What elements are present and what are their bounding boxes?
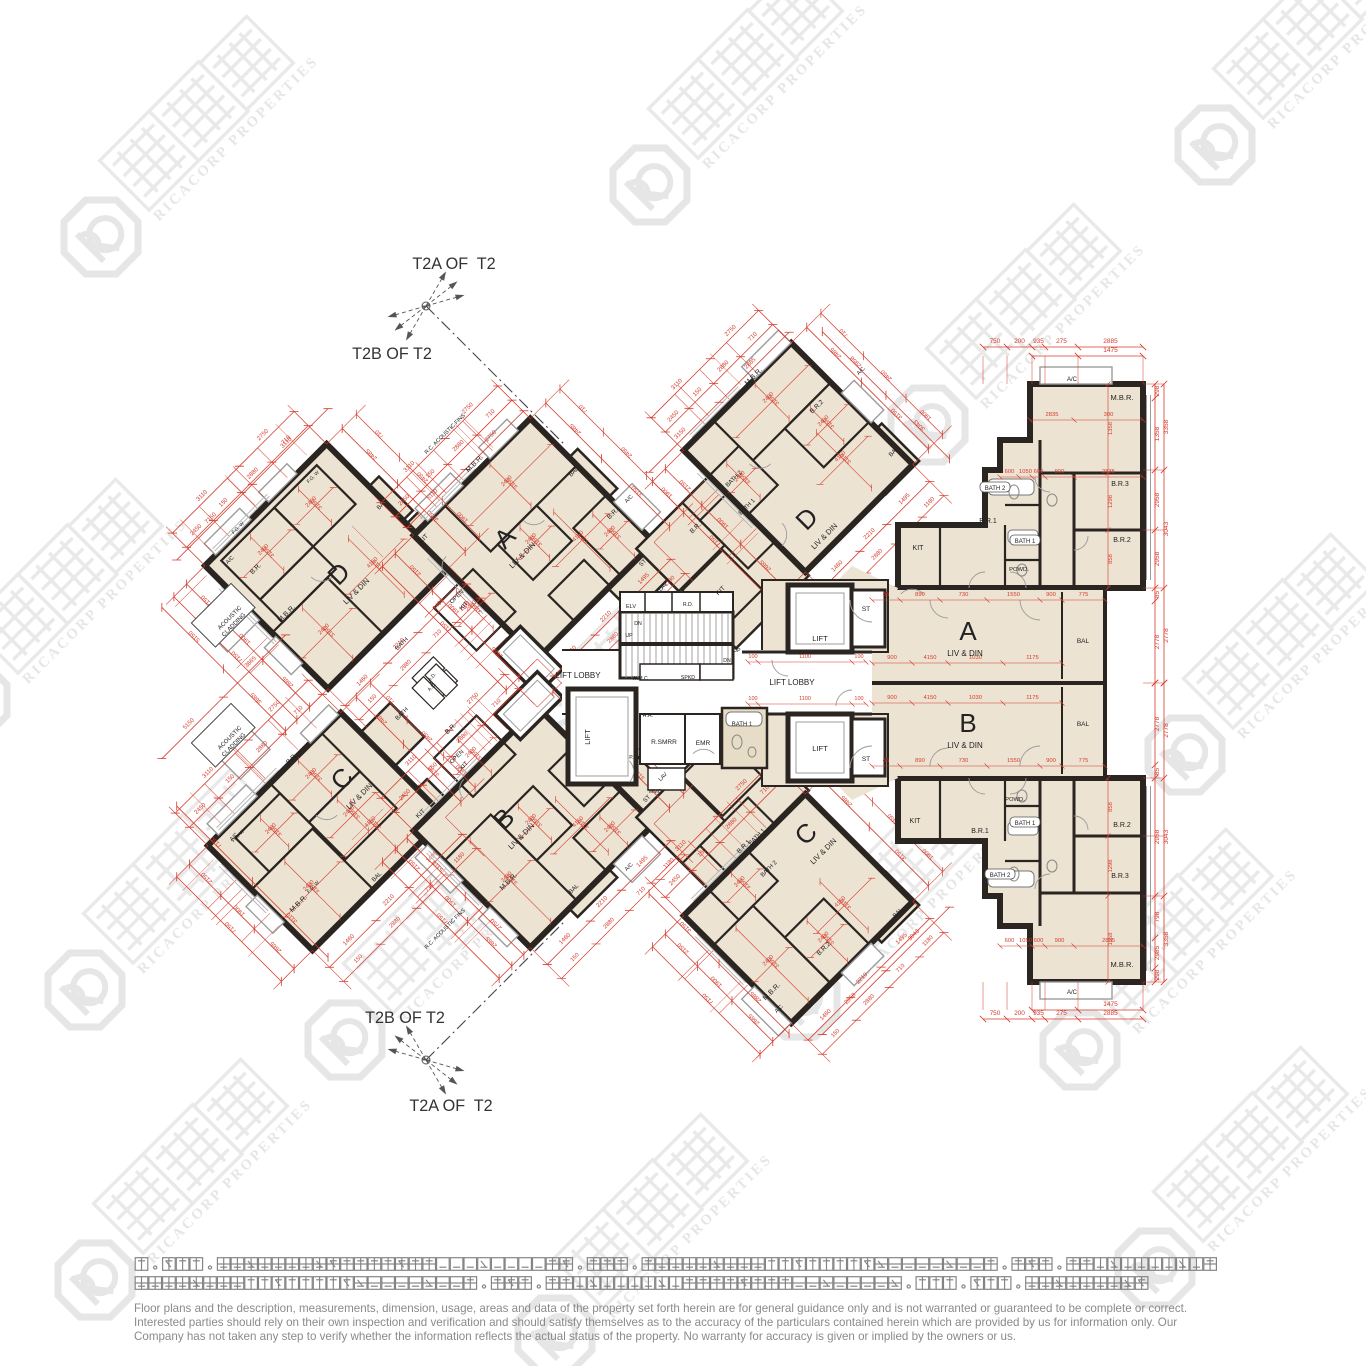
svg-text:T2B OF T2: T2B OF T2 bbox=[352, 345, 432, 363]
svg-text:100: 100 bbox=[748, 696, 757, 702]
svg-text:Floor plans and the descriptio: Floor plans and the description, measure… bbox=[134, 1302, 1187, 1315]
svg-text:935: 935 bbox=[1033, 338, 1044, 345]
svg-text:750: 750 bbox=[990, 338, 1001, 345]
svg-text:730: 730 bbox=[959, 758, 969, 764]
svg-text:1358: 1358 bbox=[1108, 422, 1114, 435]
svg-text:LIFT: LIFT bbox=[812, 634, 828, 643]
svg-text:3358: 3358 bbox=[1163, 931, 1170, 946]
svg-text:POWD.: POWD. bbox=[1005, 797, 1025, 803]
svg-text:2958: 2958 bbox=[1154, 551, 1161, 566]
svg-text:600: 600 bbox=[1005, 938, 1015, 944]
svg-text:100: 100 bbox=[854, 654, 863, 660]
svg-text:BATH 1: BATH 1 bbox=[732, 722, 753, 728]
svg-text:KIT: KIT bbox=[910, 818, 922, 825]
svg-text:3358: 3358 bbox=[1163, 419, 1170, 434]
svg-text:890: 890 bbox=[915, 592, 925, 598]
svg-text:WMC: WMC bbox=[649, 789, 662, 795]
svg-text:600: 600 bbox=[1005, 469, 1015, 475]
svg-text:M.B.R.: M.B.R. bbox=[1111, 960, 1134, 969]
svg-text:900: 900 bbox=[887, 695, 897, 701]
svg-text:DN: DN bbox=[634, 621, 642, 627]
svg-text:730: 730 bbox=[959, 592, 969, 598]
svg-text:BAL: BAL bbox=[1077, 721, 1090, 728]
svg-text:1298: 1298 bbox=[1108, 495, 1114, 508]
svg-text:B.R.2: B.R.2 bbox=[1113, 537, 1131, 544]
svg-text:B.R.2: B.R.2 bbox=[1113, 822, 1131, 829]
svg-text:BATH 1: BATH 1 bbox=[1015, 539, 1036, 545]
svg-text:UP: UP bbox=[733, 648, 741, 654]
svg-text:1175: 1175 bbox=[1026, 655, 1038, 661]
svg-text:2778: 2778 bbox=[1163, 628, 1170, 643]
svg-text:2985: 2985 bbox=[1154, 945, 1161, 960]
svg-text:85: 85 bbox=[883, 592, 889, 598]
svg-text:2778: 2778 bbox=[1154, 716, 1161, 731]
svg-text:M.B.R.: M.B.R. bbox=[1111, 393, 1134, 402]
svg-text:900: 900 bbox=[1046, 592, 1056, 598]
svg-text:2835: 2835 bbox=[1046, 412, 1059, 418]
svg-text:1358: 1358 bbox=[1154, 426, 1161, 441]
svg-text:900: 900 bbox=[887, 655, 897, 661]
svg-text:85: 85 bbox=[1154, 591, 1161, 599]
svg-text:298: 298 bbox=[1154, 969, 1161, 980]
svg-text:600: 600 bbox=[1034, 469, 1044, 475]
svg-text:R.SMRR: R.SMRR bbox=[651, 739, 677, 746]
svg-text:1550: 1550 bbox=[1007, 592, 1020, 598]
svg-text:H.R.: H.R. bbox=[643, 713, 654, 719]
svg-text:750: 750 bbox=[990, 1010, 1001, 1017]
svg-text:85: 85 bbox=[883, 758, 889, 764]
svg-text:BATH 1: BATH 1 bbox=[1015, 821, 1036, 827]
svg-text:DN: DN bbox=[723, 658, 731, 664]
svg-text:200: 200 bbox=[1014, 338, 1025, 345]
svg-text:4150: 4150 bbox=[924, 655, 937, 661]
svg-text:775: 775 bbox=[1079, 592, 1089, 598]
svg-text:A/C: A/C bbox=[1067, 377, 1078, 383]
svg-text:300: 300 bbox=[1104, 412, 1114, 418]
svg-text:A: A bbox=[959, 616, 977, 646]
svg-text:T2A OF T2: T2A OF T2 bbox=[412, 255, 495, 273]
svg-text:ST: ST bbox=[862, 756, 870, 763]
svg-text:900: 900 bbox=[1055, 469, 1065, 475]
svg-text:890: 890 bbox=[915, 758, 925, 764]
svg-text:3043: 3043 bbox=[1163, 521, 1170, 536]
svg-text:LIFT: LIFT bbox=[583, 729, 592, 745]
svg-text:BATH 2: BATH 2 bbox=[985, 486, 1006, 492]
svg-text:KIT: KIT bbox=[913, 545, 925, 552]
svg-text:LIFT: LIFT bbox=[812, 744, 828, 753]
svg-text:2958: 2958 bbox=[1154, 492, 1161, 507]
svg-text:100: 100 bbox=[854, 696, 863, 702]
svg-text:600: 600 bbox=[1034, 938, 1044, 944]
svg-text:2835: 2835 bbox=[1102, 469, 1115, 475]
svg-text:B.R.1: B.R.1 bbox=[971, 828, 989, 835]
svg-text:LIV & DIN: LIV & DIN bbox=[947, 649, 983, 658]
svg-text:UP: UP bbox=[625, 633, 633, 639]
svg-text:85: 85 bbox=[1154, 768, 1161, 776]
svg-text:T2A OF T2: T2A OF T2 bbox=[409, 1097, 492, 1115]
svg-text:1050: 1050 bbox=[1019, 469, 1032, 475]
svg-text:2778: 2778 bbox=[1154, 634, 1161, 649]
svg-text:2958: 2958 bbox=[1154, 829, 1161, 844]
svg-text:1358: 1358 bbox=[1108, 933, 1114, 946]
svg-text:900: 900 bbox=[1055, 938, 1065, 944]
svg-text:100: 100 bbox=[748, 654, 757, 660]
svg-text:R.D.: R.D. bbox=[683, 602, 693, 608]
svg-text:EMR: EMR bbox=[696, 740, 711, 747]
svg-text:2885: 2885 bbox=[1103, 338, 1118, 345]
svg-text:LIV & DIN: LIV & DIN bbox=[947, 741, 983, 750]
svg-text:2885: 2885 bbox=[1103, 1010, 1118, 1017]
svg-text:BAL: BAL bbox=[1077, 638, 1090, 645]
svg-text:1175: 1175 bbox=[1026, 695, 1038, 701]
svg-text:Interested parties should rely: Interested parties should rely on their … bbox=[134, 1316, 1177, 1329]
svg-text:798: 798 bbox=[1154, 911, 1161, 922]
svg-text:1475: 1475 bbox=[1103, 347, 1118, 354]
svg-text:LIFT LOBBY: LIFT LOBBY bbox=[555, 671, 601, 680]
svg-text:1100: 1100 bbox=[799, 654, 811, 660]
svg-text:1550: 1550 bbox=[1007, 758, 1020, 764]
svg-text:1030: 1030 bbox=[969, 695, 982, 701]
svg-text:B: B bbox=[959, 708, 976, 738]
svg-text:BATH 2: BATH 2 bbox=[990, 873, 1011, 879]
svg-text:275: 275 bbox=[1056, 338, 1067, 345]
svg-text:858: 858 bbox=[1108, 554, 1114, 564]
svg-text:2778: 2778 bbox=[1163, 723, 1170, 738]
svg-text:1475: 1475 bbox=[1103, 1001, 1118, 1008]
svg-text:4150: 4150 bbox=[924, 695, 937, 701]
svg-text:POWD.: POWD. bbox=[1009, 567, 1029, 573]
svg-text:900: 900 bbox=[1046, 758, 1056, 764]
svg-text:T2B OF T2: T2B OF T2 bbox=[365, 1009, 445, 1027]
svg-text:1100: 1100 bbox=[799, 696, 811, 702]
svg-text:298: 298 bbox=[1154, 385, 1161, 396]
svg-text:935: 935 bbox=[1033, 1010, 1044, 1017]
svg-text:B.R.3: B.R.3 bbox=[1111, 873, 1129, 880]
svg-text:LIFT LOBBY: LIFT LOBBY bbox=[769, 678, 815, 687]
svg-text:SPKD: SPKD bbox=[681, 675, 695, 681]
svg-text:775: 775 bbox=[1079, 758, 1089, 764]
svg-text:1050: 1050 bbox=[1019, 938, 1032, 944]
svg-text:ST: ST bbox=[862, 606, 870, 613]
svg-text:B.R.3: B.R.3 bbox=[1111, 481, 1129, 488]
svg-text:P.D.: P.D. bbox=[629, 755, 638, 761]
svg-text:275: 275 bbox=[1056, 1010, 1067, 1017]
svg-text:W.M.C: W.M.C bbox=[632, 676, 648, 682]
svg-text:1298: 1298 bbox=[1108, 860, 1114, 873]
svg-text:B.R.1: B.R.1 bbox=[979, 518, 997, 525]
svg-text:3043: 3043 bbox=[1163, 829, 1170, 844]
svg-text:A/C: A/C bbox=[1067, 990, 1078, 996]
svg-text:858: 858 bbox=[1108, 802, 1114, 812]
svg-text:Company has not taken any step: Company has not taken any step to verify… bbox=[134, 1330, 1016, 1343]
svg-text:200: 200 bbox=[1014, 1010, 1025, 1017]
svg-text:ELV: ELV bbox=[626, 604, 636, 610]
